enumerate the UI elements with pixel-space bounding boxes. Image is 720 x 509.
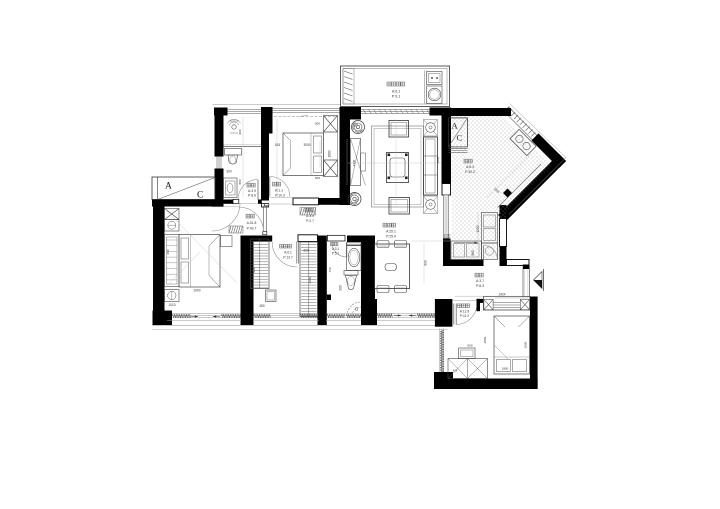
svg-text:500: 500 xyxy=(315,176,320,180)
svg-text:A:31.8: A:31.8 xyxy=(247,221,257,225)
svg-text:800: 800 xyxy=(238,179,242,184)
svg-text:8.9: 8.9 xyxy=(453,369,458,373)
svg-text:P:25.4: P:25.4 xyxy=(386,235,396,239)
svg-text:1010: 1010 xyxy=(168,303,175,307)
svg-text:600: 600 xyxy=(467,344,472,348)
svg-text:515: 515 xyxy=(275,143,281,147)
svg-text:P:43.7: P:43.7 xyxy=(247,227,257,231)
svg-text:A:3.9: A:3.9 xyxy=(248,189,256,193)
svg-text:P:8.3: P:8.3 xyxy=(476,284,484,288)
svg-text:C: C xyxy=(197,191,203,201)
svg-text:P:11.2: P:11.2 xyxy=(460,314,469,318)
svg-text:P:13.7: P:13.7 xyxy=(283,256,293,260)
svg-text:P:10.3: P:10.3 xyxy=(275,194,285,198)
svg-text:300: 300 xyxy=(226,170,232,174)
svg-text:600: 600 xyxy=(166,249,170,254)
svg-text:A:25.1: A:25.1 xyxy=(386,230,396,234)
svg-text:860: 860 xyxy=(471,250,475,256)
svg-text:1800: 1800 xyxy=(502,367,509,371)
svg-text:2860: 2860 xyxy=(483,336,487,343)
svg-text:A:3.7: A:3.7 xyxy=(476,279,484,283)
svg-text:A:6.1: A:6.1 xyxy=(392,90,400,94)
svg-text:900: 900 xyxy=(339,285,343,291)
svg-text:P:5.1: P:5.1 xyxy=(332,252,340,256)
svg-text:1424: 1424 xyxy=(498,292,505,296)
svg-text:900: 900 xyxy=(238,129,242,134)
svg-text:600: 600 xyxy=(303,249,309,253)
svg-text:2000: 2000 xyxy=(524,341,528,348)
svg-text:P:30.2: P:30.2 xyxy=(465,170,475,174)
svg-text:P:8.6: P:8.6 xyxy=(248,194,256,198)
svg-text:1800: 1800 xyxy=(328,150,332,157)
svg-text:A:6.1: A:6.1 xyxy=(284,251,292,255)
svg-text:A: A xyxy=(165,182,172,192)
svg-text:3000: 3000 xyxy=(303,143,310,147)
svg-text:760: 760 xyxy=(328,267,332,272)
svg-text:4100: 4100 xyxy=(352,159,356,166)
svg-text:A:6.4: A:6.4 xyxy=(466,165,474,169)
svg-text:A:1.1: A:1.1 xyxy=(275,189,283,193)
svg-text:P:9.1: P:9.1 xyxy=(392,95,400,99)
svg-text:2060: 2060 xyxy=(308,276,312,283)
svg-text:A:12.9: A:12.9 xyxy=(460,310,470,314)
svg-text:600: 600 xyxy=(252,267,256,273)
svg-text:1100: 1100 xyxy=(444,237,451,241)
svg-text:500: 500 xyxy=(315,122,320,126)
svg-text:3550: 3550 xyxy=(436,156,440,163)
svg-text:450: 450 xyxy=(259,304,265,308)
svg-text:P:2.7: P:2.7 xyxy=(306,219,314,223)
svg-text:A:3.1: A:3.1 xyxy=(332,247,340,251)
svg-text:2000: 2000 xyxy=(193,289,200,293)
